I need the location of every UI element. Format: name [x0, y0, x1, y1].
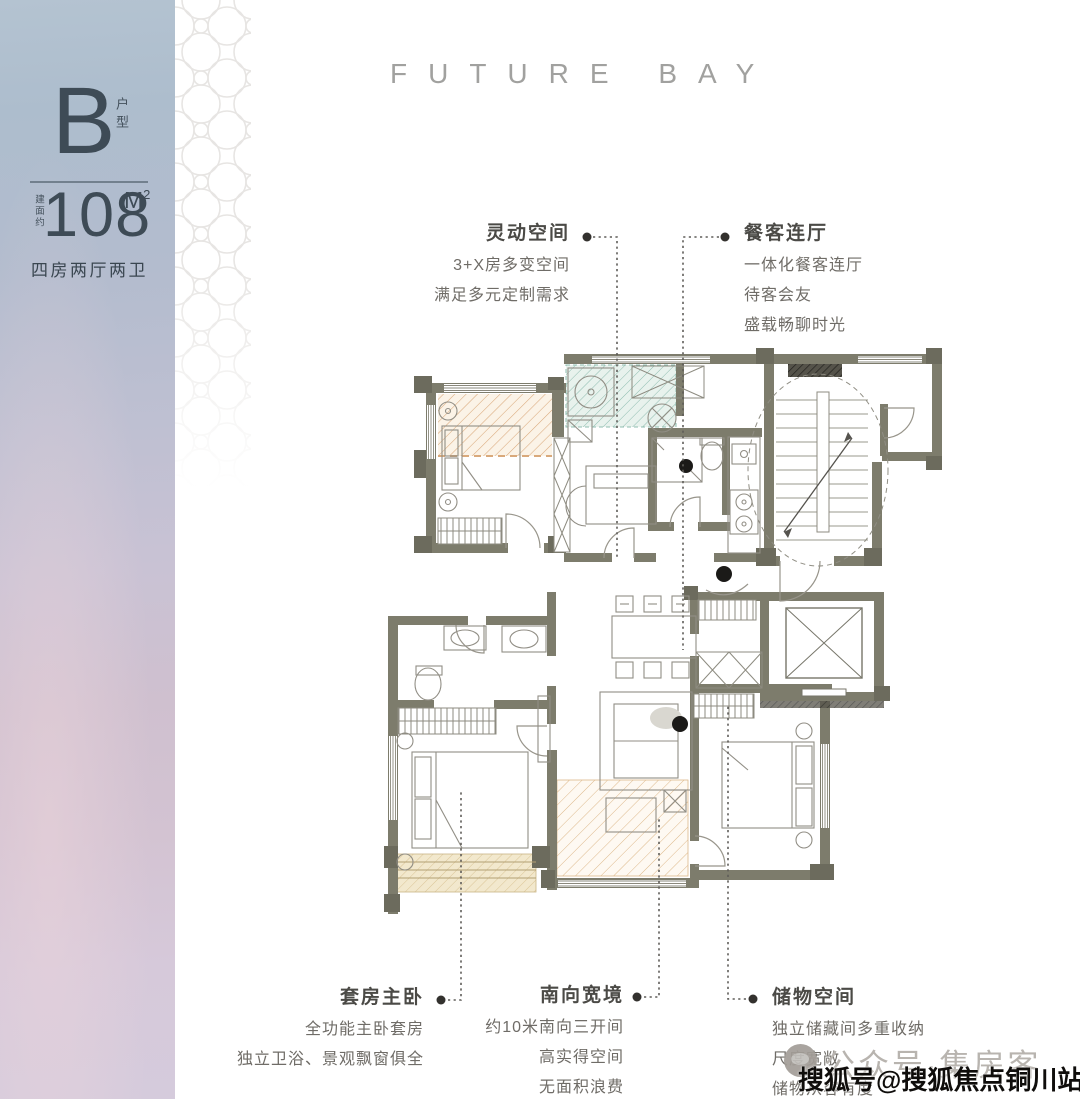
callout-line: 满足多元定制需求: [434, 281, 570, 311]
unit-letter: B: [52, 74, 115, 169]
callout-line: 高实得空间: [485, 1043, 624, 1073]
layout-summary: 四房两厅两卫: [31, 256, 148, 281]
callout-title: 套房主卧: [237, 986, 424, 1010]
watermark-black: 搜狐号@搜狐焦点铜川站: [798, 1060, 1080, 1097]
floorplan-poster: B 户型 建面约 108 M2 四房两厅两卫 FUTURE BAY: [0, 0, 1080, 1099]
callout-line: 约10米南向三开间: [485, 1013, 624, 1043]
callout-line: 一体化餐客连厅: [744, 251, 863, 281]
callout-south-span: 南向宽境 约10米南向三开间 高实得空间 无面积浪费: [485, 984, 624, 1099]
callout-flex-space: 灵动空间 3+X房多变空间 满足多元定制需求: [434, 222, 570, 311]
callout-line: 盛载畅聊时光: [744, 311, 863, 341]
callout-line: 3+X房多变空间: [434, 251, 570, 281]
floor-plan: [0, 0, 1080, 1099]
callout-line: 待客会友: [744, 281, 863, 311]
hatch-zones: [396, 365, 688, 892]
callout-line: 独立卫浴、景观飘窗俱全: [237, 1045, 424, 1075]
callout-title: 餐客连厅: [744, 222, 863, 246]
callout-title: 灵动空间: [434, 222, 570, 246]
callout-title: 储物空间: [772, 986, 925, 1010]
unit-type-label: 户型: [112, 97, 131, 133]
callout-dining: 餐客连厅 一体化餐客连厅 待客会友 盛载畅聊时光: [744, 222, 863, 341]
callout-line: 无面积浪费: [485, 1073, 624, 1099]
callout-master-suite: 套房主卧 全功能主卧套房 独立卫浴、景观飘窗俱全: [237, 986, 424, 1075]
area-unit: M2: [124, 187, 150, 214]
callout-title: 南向宽境: [485, 984, 624, 1008]
callout-line: 全功能主卧套房: [237, 1015, 424, 1045]
